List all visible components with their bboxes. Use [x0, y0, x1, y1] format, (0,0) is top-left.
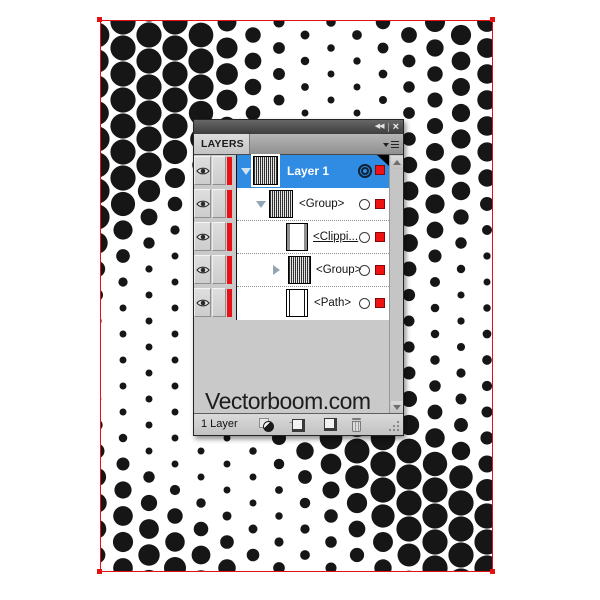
lock-cell[interactable]	[212, 156, 226, 185]
watermark-text: Vectorboom.com	[205, 388, 371, 415]
layer-row-group-inner[interactable]: <Group>	[237, 254, 389, 287]
new-sublayer-icon: →	[288, 418, 305, 432]
layer-name[interactable]: <Group>	[316, 254, 361, 287]
group-thumbnail	[288, 256, 311, 284]
layer-color-bar	[227, 289, 232, 317]
clipping-mask-icon	[259, 418, 274, 432]
clipping-path-thumbnail	[286, 223, 308, 251]
trash-icon	[351, 418, 362, 432]
visibility-column	[194, 155, 236, 320]
layer-row-path[interactable]: <Path>	[237, 287, 389, 320]
eye-icon[interactable]	[194, 156, 211, 185]
layers-panel: ◀◀ × LAYERS	[193, 119, 404, 436]
disclosure-triangle-icon[interactable]	[241, 168, 251, 175]
create-new-layer-button[interactable]	[320, 416, 340, 433]
lock-cell[interactable]	[212, 222, 226, 251]
target-circle-selected[interactable]	[358, 164, 372, 178]
scroll-up-icon[interactable]	[391, 156, 403, 169]
path-thumbnail	[286, 289, 308, 317]
tab-layers[interactable]: LAYERS	[194, 134, 250, 154]
visibility-row	[194, 254, 236, 287]
layer-name[interactable]: Layer 1	[287, 155, 329, 188]
new-layer-icon	[324, 418, 337, 431]
layer-name[interactable]: <Group>	[299, 188, 344, 221]
lock-cell[interactable]	[212, 288, 226, 317]
disclosure-triangle-icon[interactable]	[273, 265, 280, 275]
selection-handle-top-left[interactable]	[97, 17, 102, 22]
group-thumbnail	[269, 190, 293, 218]
layer-row-layer1[interactable]: Layer 1	[237, 155, 389, 188]
selection-handle-bottom-right[interactable]	[490, 569, 495, 574]
resize-grip[interactable]	[389, 421, 400, 432]
eye-icon[interactable]	[194, 189, 211, 218]
selection-color-square	[375, 165, 385, 175]
scrollbar[interactable]	[389, 155, 403, 415]
layer-color-bar	[227, 223, 232, 251]
panel-statusbar: 1 Layer →	[194, 413, 403, 435]
disclosure-triangle-icon[interactable]	[256, 201, 266, 208]
target-circle[interactable]	[359, 232, 370, 243]
panel-body: Layer 1 <Group> <Clippi...	[194, 155, 403, 414]
delete-selection-button[interactable]	[346, 416, 366, 433]
selection-color-square	[375, 298, 385, 308]
panel-tabbar: LAYERS	[194, 134, 403, 155]
layer-color-bar	[227, 256, 232, 284]
panel-menu-icon[interactable]	[383, 139, 399, 150]
layer-color-bar	[227, 190, 232, 218]
layer-color-bar	[227, 157, 232, 185]
eye-icon[interactable]	[194, 255, 211, 284]
eye-icon[interactable]	[194, 222, 211, 251]
lock-cell[interactable]	[212, 189, 226, 218]
selection-color-square	[375, 265, 385, 275]
create-new-sublayer-button[interactable]: →	[286, 416, 306, 433]
make-release-clipping-mask-button[interactable]	[256, 416, 276, 433]
panel-empty-area: Vectorboom.com	[194, 320, 389, 415]
target-circle[interactable]	[359, 298, 370, 309]
layer-name[interactable]: <Path>	[314, 287, 351, 320]
layer-list: Layer 1 <Group> <Clippi...	[237, 155, 389, 321]
titlebar-separator	[388, 123, 389, 132]
visibility-row	[194, 188, 236, 221]
target-circle[interactable]	[359, 199, 370, 210]
eye-icon[interactable]	[194, 288, 211, 317]
close-icon[interactable]: ×	[393, 120, 399, 134]
layer-thumbnail	[253, 156, 278, 185]
layer-row-clipping-path[interactable]: <Clippi...	[237, 221, 389, 254]
visibility-row	[194, 221, 236, 254]
visibility-row	[194, 155, 236, 188]
panel-titlebar[interactable]: ◀◀ ×	[194, 120, 403, 134]
selection-color-square	[375, 232, 385, 242]
visibility-row	[194, 287, 236, 320]
selection-handle-top-right[interactable]	[490, 17, 495, 22]
layer-row-group-outer[interactable]: <Group>	[237, 188, 389, 221]
target-circle[interactable]	[359, 265, 370, 276]
collapse-to-icons-icon[interactable]: ◀◀	[375, 120, 384, 134]
lock-cell[interactable]	[212, 255, 226, 284]
layer-name[interactable]: <Clippi...	[313, 221, 358, 254]
corner-indicator-icon	[377, 155, 389, 166]
selection-color-square	[375, 199, 385, 209]
selection-handle-bottom-left[interactable]	[97, 569, 102, 574]
layer-count-label: 1 Layer	[201, 414, 238, 434]
